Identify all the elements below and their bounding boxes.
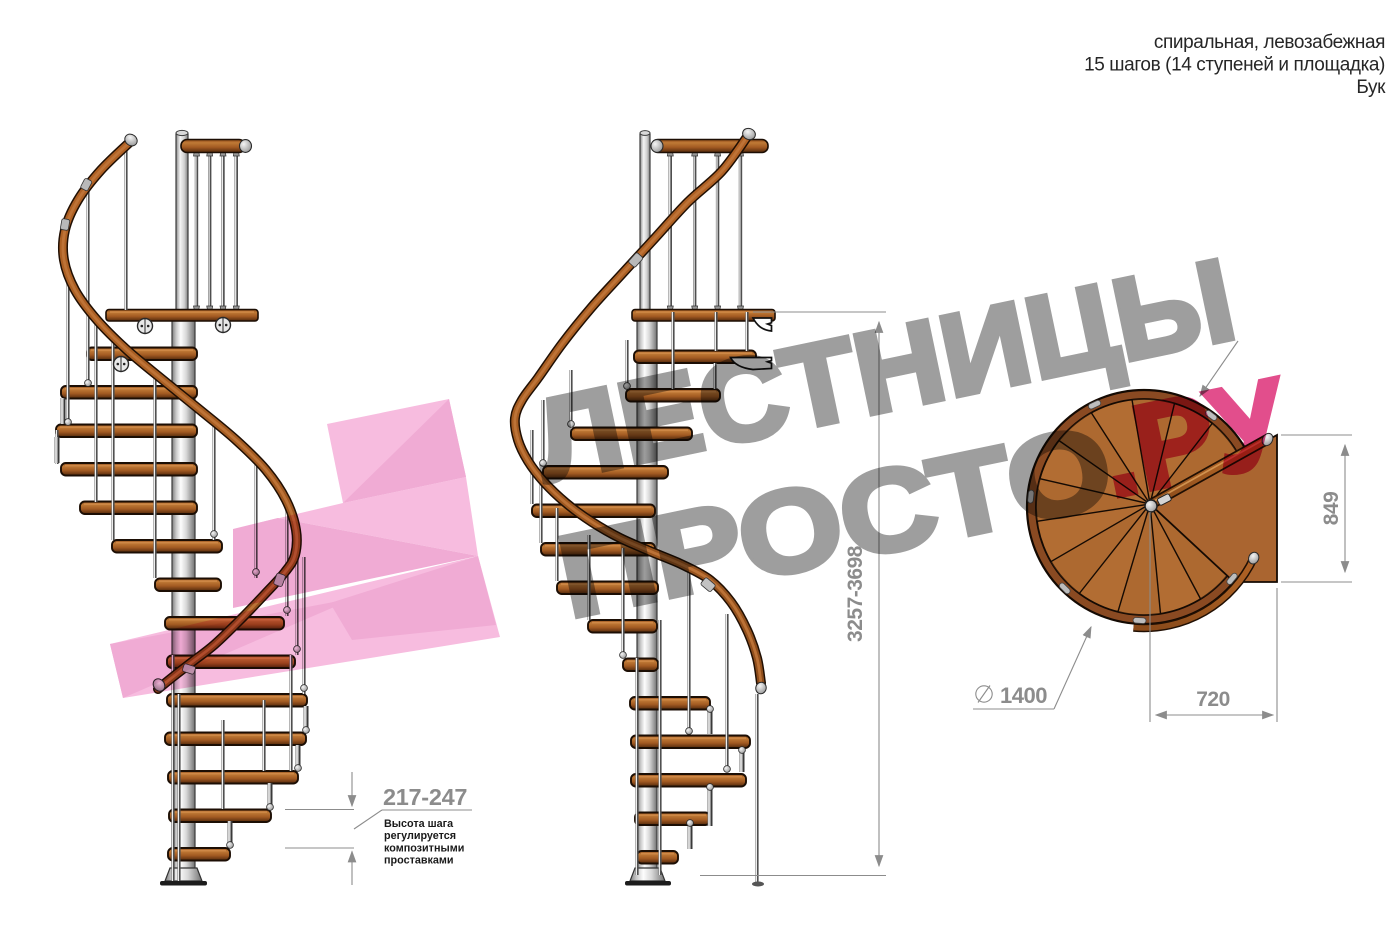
svg-text:217-247: 217-247 (383, 784, 467, 810)
svg-text:849: 849 (1320, 492, 1343, 526)
svg-text:1400: 1400 (1000, 683, 1047, 708)
svg-text:720: 720 (1196, 688, 1230, 711)
svg-text:Высота шагарегулируетсякомпози: Высота шагарегулируетсякомпозитнымипрост… (384, 818, 464, 867)
